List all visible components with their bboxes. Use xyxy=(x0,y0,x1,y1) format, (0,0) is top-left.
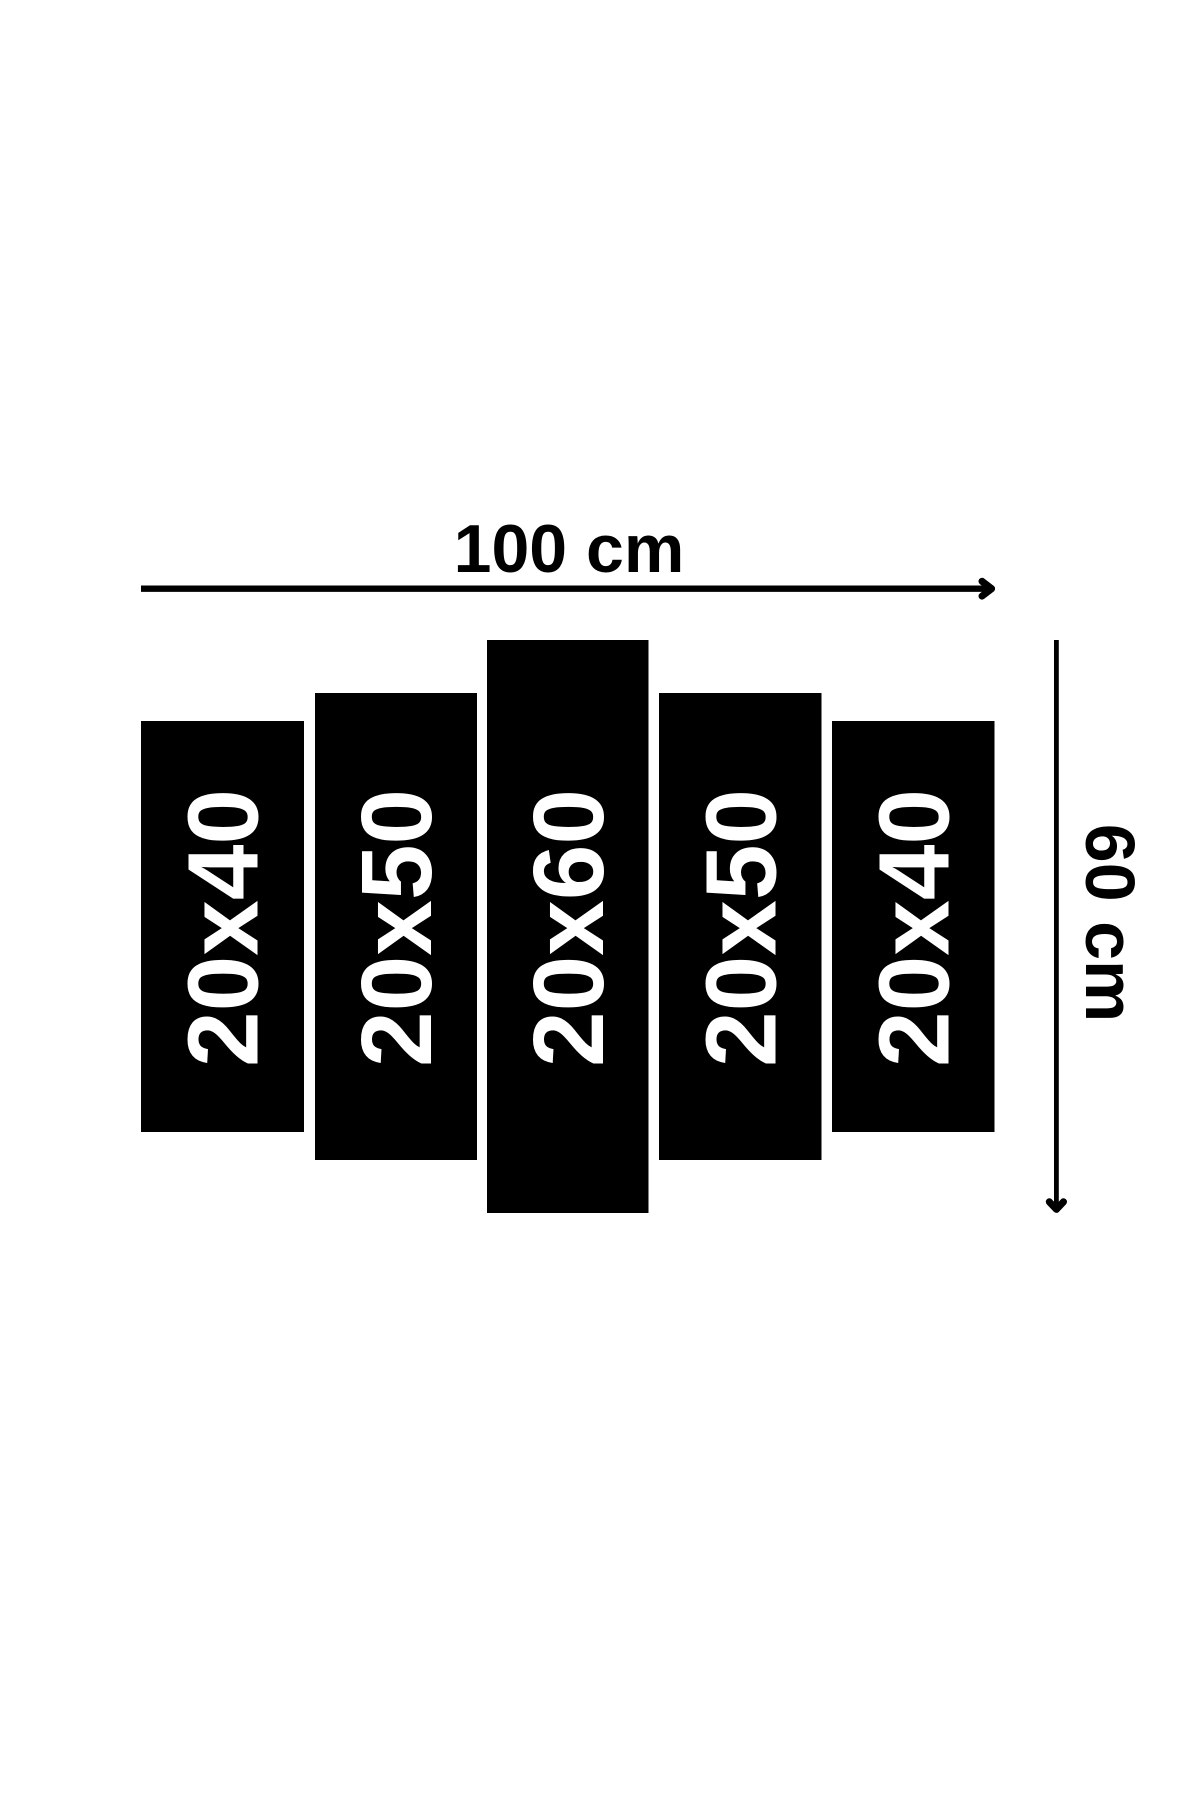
svg-text:20x50: 20x50 xyxy=(685,789,797,1067)
svg-text:60 cm: 60 cm xyxy=(1071,824,1149,1022)
svg-text:20x40: 20x40 xyxy=(168,789,280,1067)
svg-text:20x50: 20x50 xyxy=(341,789,453,1067)
svg-text:20x60: 20x60 xyxy=(513,789,625,1067)
svg-text:20x40: 20x40 xyxy=(858,789,970,1067)
svg-text:100 cm: 100 cm xyxy=(454,511,685,587)
